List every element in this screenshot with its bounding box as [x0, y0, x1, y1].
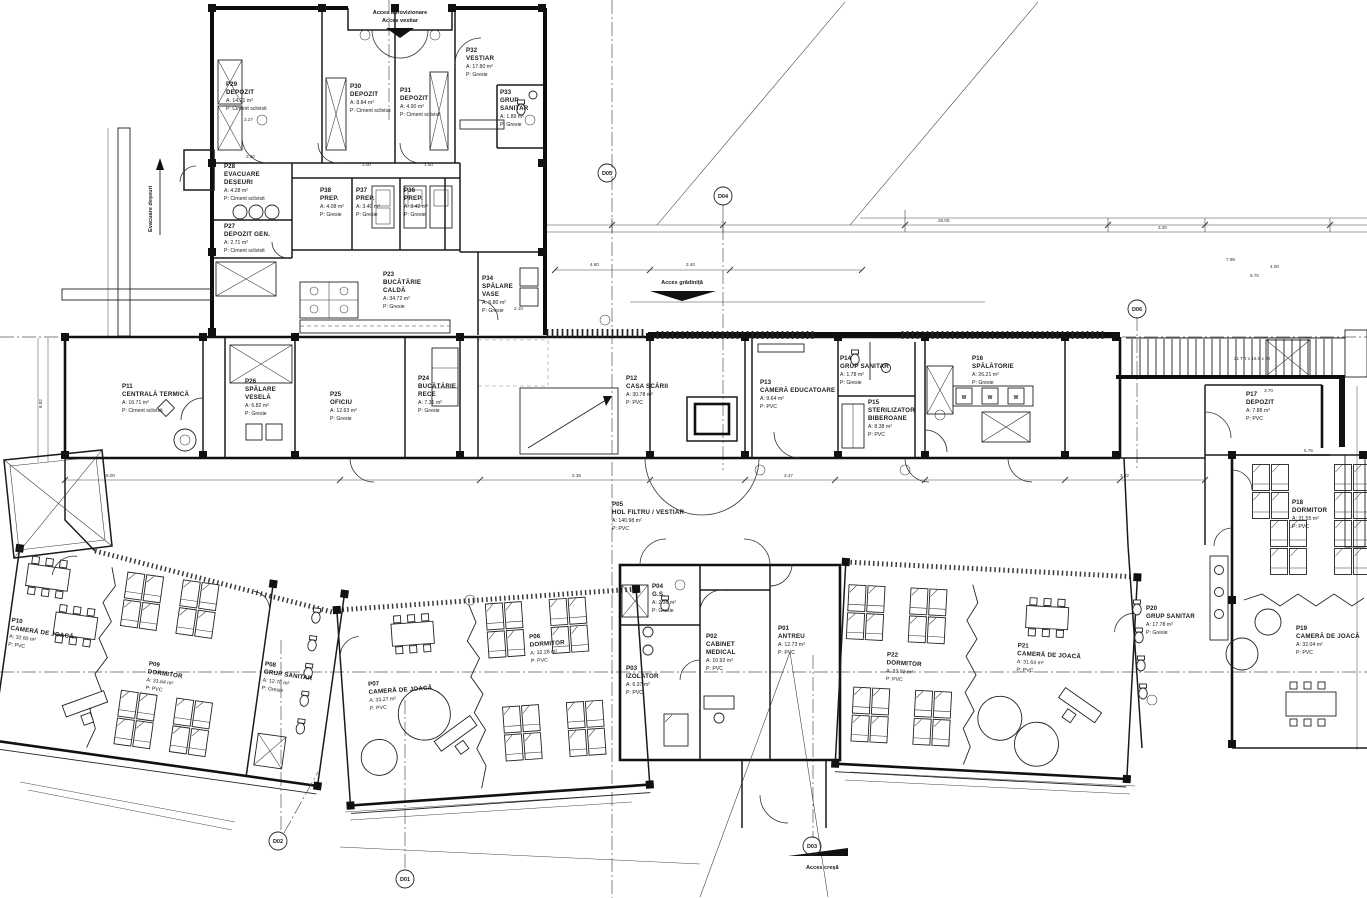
room-floor: P: PVC [531, 657, 549, 664]
room-name: SPĂLĂTORIE [972, 363, 1014, 370]
room-area: A: 34.72 m² [383, 296, 410, 302]
room-name: CENTRALĂ TERMICĂ [122, 391, 189, 398]
room-name: CASA SCĂRII [626, 383, 668, 390]
room-floor: P: PVC [626, 400, 643, 406]
room-area: A: 7.88 m² [1246, 408, 1270, 414]
room-id: P11 [122, 383, 133, 390]
marker-label: D05 [602, 171, 612, 177]
room-id: P37 [356, 187, 368, 194]
room-name: G.S. [652, 591, 665, 598]
room-name2: CALDĂ [383, 287, 406, 294]
annotation-acces-aprovizionare: Acces aprovizionare [373, 10, 427, 16]
room-name2: VESELĂ [245, 394, 271, 401]
marker-label: D03 [807, 844, 817, 850]
dim-text: 6.82 [38, 399, 43, 408]
room-floor: P: Gresie [320, 212, 342, 218]
dim-text: 3.47 [784, 473, 793, 478]
dim-text: 4.80 [590, 262, 599, 267]
washer-label: W [962, 395, 967, 401]
room-area: A: 10.92 m² [706, 658, 733, 664]
room-name2: BIBEROANE [868, 415, 907, 422]
room-name: CAMERĂ EDUCATOARE [760, 387, 835, 394]
room-area: A: 1.89 m² [500, 114, 524, 120]
room-id: P04 [652, 583, 664, 590]
room-name: GRUP [500, 97, 519, 104]
room-id: P21 [1017, 642, 1029, 650]
room-name2: RECE [418, 391, 436, 398]
room-floor: P: Gresie [972, 380, 994, 386]
toilet-icon [1139, 684, 1147, 699]
dim-text: 3.70 [1264, 388, 1273, 393]
room-id: P22 [887, 651, 899, 659]
floor-plan-page: 28.05 7.98 4.00 8.70 4.80 2.40 8.48 8.00… [0, 0, 1367, 898]
room-area: A: 8.38 m² [868, 424, 892, 430]
room-id: P18 [1292, 499, 1304, 506]
room-id: P17 [1246, 391, 1258, 398]
stair-note: 21 TR x 16.5 x 28 [1234, 356, 1271, 361]
room-name: GRUP SANITAR [1146, 613, 1195, 620]
room-floor: P: Gresie [418, 408, 440, 414]
room-floor: P: PVC [1292, 524, 1309, 530]
room-id: P38 [320, 187, 332, 194]
annotation-acces-vestiar: Acces vestiar [382, 18, 419, 24]
room-area: A: 4.90 m² [400, 104, 424, 110]
room-id: P16 [972, 355, 984, 362]
table-set [1025, 598, 1069, 638]
room-floor: P: PVC [868, 432, 885, 438]
room-floor: P: PVC [886, 676, 904, 683]
room-name: BUCĂTĂRIE [418, 383, 456, 390]
room-id: P19 [1296, 625, 1308, 632]
room-id: P32 [466, 47, 478, 54]
room-id: P29 [226, 81, 238, 88]
room-area: A: 2.71 m² [224, 240, 248, 246]
window-band [900, 331, 1105, 339]
room-area: A: 6.80 m² [482, 300, 506, 306]
room-floor: P: PVC [626, 690, 643, 696]
room-area: A: 14.21 m² [226, 98, 253, 104]
room-area: A: 31.55 m² [1292, 516, 1319, 522]
room-floor: P: Gresie [383, 304, 405, 310]
marker-label: D01 [400, 877, 410, 883]
room-floor: P: PVC [1296, 650, 1313, 656]
washer-label: W [988, 395, 993, 401]
room-name: DEPOZIT [350, 91, 378, 98]
annotation-acces-cresa: Acces creșă [806, 865, 840, 871]
room-name: IZOLATOR [626, 673, 659, 680]
room-floor: P: Ciment sclivisit [224, 248, 265, 254]
room-id: P24 [418, 375, 430, 382]
room-name: HOL FILTRU / VESTIAR [612, 509, 685, 516]
room-name: CABINET [706, 641, 735, 648]
room-area: A: 2.36 m² [652, 600, 676, 606]
dim-text: 2.10 [514, 306, 523, 311]
window-band [545, 329, 645, 338]
room-area: A: 26.21 m² [972, 372, 999, 378]
room-id: P33 [500, 89, 512, 96]
room-id: P27 [224, 223, 236, 230]
room-id: P07 [368, 680, 380, 688]
room-area: A: 6.37 m² [626, 682, 650, 688]
room-area: A: 3.42 m² [404, 204, 428, 210]
room-name: EVACUARE [224, 171, 260, 178]
room-name: PREP. [320, 195, 339, 202]
room-floor: P: Ciment sclivisit [350, 108, 391, 114]
room-area: A: 17.80 m² [466, 64, 493, 70]
room-area: A: 8.84 m² [350, 100, 374, 106]
room-floor: P: Gresie [652, 608, 674, 614]
washer-label: W [1014, 395, 1019, 401]
room-name: STERILIZATOR [868, 407, 915, 414]
room-floor: P: Gresie [500, 122, 522, 128]
room-id: P26 [245, 378, 257, 385]
room-name2: DEȘEURI [224, 179, 253, 186]
dim-text: 4.00 [1270, 264, 1279, 269]
room-id: P34 [482, 275, 494, 282]
toilet-icon [1137, 656, 1145, 671]
room-floor: P: Ciment sclivisit [122, 408, 163, 414]
room-area: A: 32.04 m² [1296, 642, 1323, 648]
room-floor: P: PVC [1016, 667, 1034, 674]
room-id: P01 [778, 625, 790, 632]
room-floor: P: PVC [706, 666, 723, 672]
room-name: SPĂLARE [245, 386, 276, 393]
room-area: A: 12.63 m² [330, 408, 357, 414]
dim-text: 2.40 [686, 262, 695, 267]
room-area: A: 6.82 m² [245, 403, 269, 409]
dim-text: 2.38 [572, 473, 581, 478]
room-name: VESTIAR [466, 55, 495, 62]
room-name: BUCĂTĂRIE [383, 279, 421, 286]
room-area: A: 4.08 m² [320, 204, 344, 210]
room-id: P12 [626, 375, 638, 382]
room-floor: P: Gresie [1146, 630, 1168, 636]
dim-text: 8.70 [1250, 273, 1259, 278]
marker-label: D04 [718, 194, 729, 200]
room-floor: P: Gresie [840, 380, 862, 386]
dim-text: 28.05 [938, 218, 950, 223]
annotation-evacuare-deseuri: Evacuare deșeuri [148, 185, 154, 232]
room-name2: MEDICAL [706, 649, 736, 656]
window-band [655, 331, 815, 339]
room-floor: P: Gresie [330, 416, 352, 422]
room-id: P15 [868, 399, 880, 406]
room-name: PREP. [356, 195, 375, 202]
room-id: P36 [404, 187, 416, 194]
toilet-icon [1135, 628, 1143, 643]
room-area: A: 3.40 m² [356, 204, 380, 210]
room-area: A: 7.31 m² [418, 400, 442, 406]
room-id: P30 [350, 83, 362, 90]
room-area: A: 4.28 m² [224, 188, 248, 194]
room-name: DEPOZIT [1246, 399, 1274, 406]
room-name: OFICIU [330, 399, 352, 406]
dim-text: 7.98 [1226, 257, 1235, 262]
room-floor: P: Gresie [482, 308, 504, 314]
room-name: GRUP SANITAR [840, 363, 889, 370]
room-floor: P: Gresie [356, 212, 378, 218]
room-floor: P: Ciment sclivisit [400, 112, 441, 118]
room-id: P25 [330, 391, 342, 398]
floor-plan-drawing: 28.05 7.98 4.00 8.70 4.80 2.40 8.48 8.00… [0, 0, 1367, 898]
room-floor: P: Ciment sclivisit [226, 106, 267, 112]
room-name: CAMERĂ DE JOACĂ [1296, 633, 1360, 640]
room-area: A: 9.64 m² [760, 396, 784, 402]
room-floor: P: Ciment sclivisit [224, 196, 265, 202]
dim-text: 6.75 [1304, 448, 1313, 453]
room-id: P03 [626, 665, 638, 672]
room-id: P13 [760, 379, 772, 386]
room-floor: P: PVC [612, 526, 629, 532]
table-set [390, 613, 435, 654]
room-floor: P: Gresie [466, 72, 488, 78]
room-floor: P: Gresie [245, 411, 267, 417]
room-floor: P: PVC [370, 705, 388, 712]
room-floor: P: Gresie [404, 212, 426, 218]
dim-text: 8.00 [106, 473, 115, 478]
room-name: DEPOZIT [226, 89, 254, 96]
toilet-icon [1133, 600, 1141, 615]
room-area: A: 16.71 m² [122, 400, 149, 406]
room-floor: P: PVC [778, 650, 795, 656]
room-name: DEPOZIT [400, 95, 428, 102]
table [1286, 692, 1336, 716]
room-id: P05 [612, 501, 624, 508]
room-floor: P: PVC [760, 404, 777, 410]
room-name: SPĂLARE [482, 283, 513, 290]
room-area: A: 12.73 m² [778, 642, 805, 648]
room-name: ANTREU [778, 633, 805, 640]
room-area: A: 140.98 m² [612, 518, 642, 524]
room-name: DEPOZIT GEN. [224, 231, 270, 238]
room-id: P28 [224, 163, 236, 170]
room-id: P02 [706, 633, 718, 640]
room-name: DORMITOR [1292, 507, 1328, 514]
room-area: A: 1.78 m² [840, 372, 864, 378]
room-floor: P: PVC [1246, 416, 1263, 422]
dim-text: 2.27 [244, 117, 253, 122]
room-name2: SANITAR [500, 105, 529, 112]
room-id: P31 [400, 87, 412, 94]
paper-background [0, 0, 1367, 898]
annotation-acces-gradinita: Acces grădiniță [661, 280, 704, 286]
room-area: A: 17.78 m² [1146, 622, 1173, 628]
dim-text: 3.20 [1158, 225, 1167, 230]
room-id: P23 [383, 271, 395, 278]
marker-label: D06 [1132, 307, 1142, 313]
room-area: A: 30.78 m² [626, 392, 653, 398]
room-id: P20 [1146, 605, 1158, 612]
room-id: P14 [840, 355, 852, 362]
room-id: P06 [529, 633, 541, 641]
room-name2: VASE [482, 291, 499, 298]
marker-label: D02 [273, 839, 283, 845]
room-name: PREP. [404, 195, 423, 202]
